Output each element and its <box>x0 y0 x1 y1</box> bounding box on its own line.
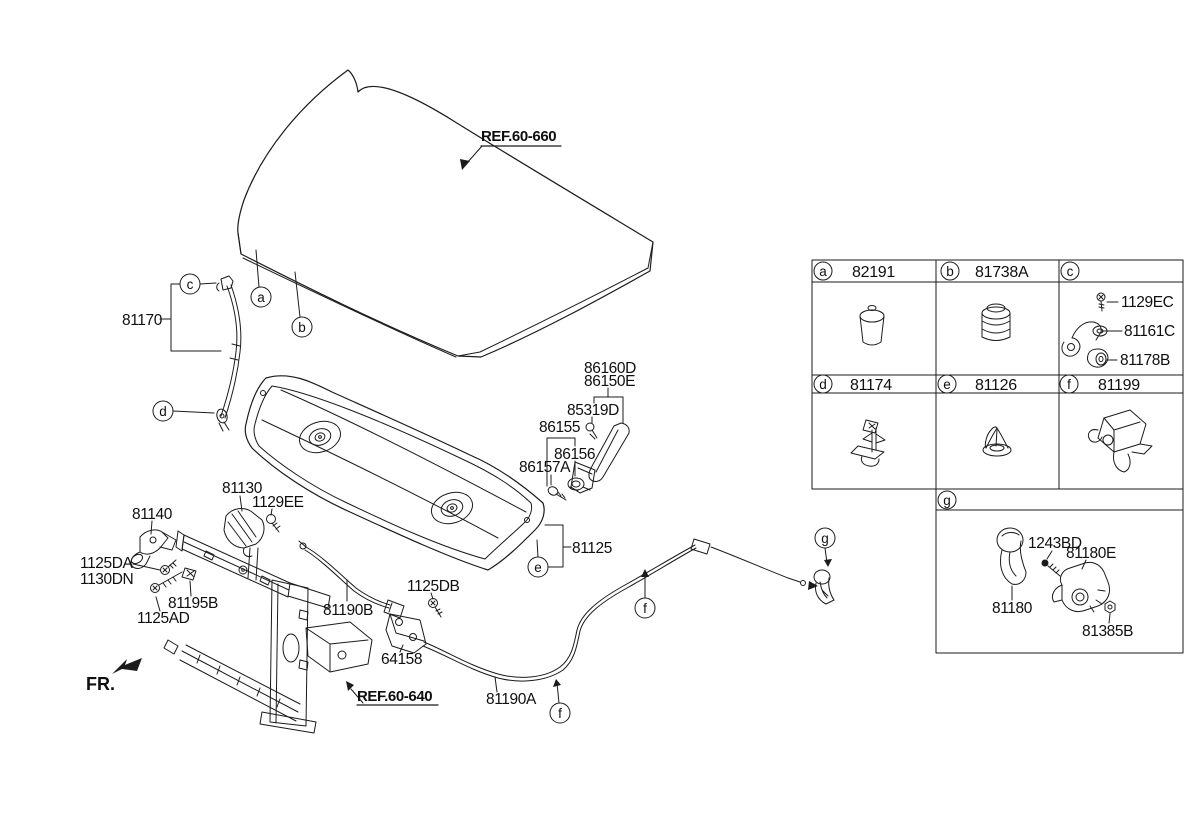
insulator-pad-label[interactable]: 81125 <box>572 540 612 557</box>
table-part-d: 81174 <box>850 377 892 394</box>
table-letter-f: f <box>1067 377 1071 392</box>
callout-e-letter: e <box>534 560 542 575</box>
table-part-g-handle[interactable]: 81180 <box>992 600 1033 617</box>
table-part-f: 81199 <box>1098 377 1140 394</box>
carrier-drawing <box>164 531 372 733</box>
latch-bolt-drawing <box>267 515 281 533</box>
hood-bumper-bracket-icons <box>1062 293 1122 367</box>
release-striker-icon <box>1052 562 1109 612</box>
ref-hood-text[interactable]: REF.60-660 <box>481 128 556 145</box>
hood-parts-diagram: REF.60-660 a b 81170 c d <box>0 0 1200 820</box>
latch-bolt-label[interactable]: 1129EE <box>252 494 304 511</box>
bracket-bolt-label[interactable]: 1125DB <box>407 578 460 595</box>
side-seal-screw-label[interactable]: 86157A <box>519 459 571 476</box>
table-letter-b: b <box>946 264 954 279</box>
cable-rear-label[interactable]: 81190A <box>486 691 537 708</box>
table-part-c-grommet[interactable]: 81178B <box>1120 352 1170 369</box>
cable-front-label[interactable]: 81190B <box>323 602 373 619</box>
cable-rear-drawing <box>423 539 818 681</box>
callout-g[interactable]: g <box>815 528 835 567</box>
handle-screw-icon <box>1042 560 1061 577</box>
ref-carrier-arrowhead <box>346 681 354 691</box>
table-cell-e-header[interactable]: e 81126 <box>938 375 1017 394</box>
table-letter-e: e <box>943 377 951 392</box>
table-part-g-nut[interactable]: 81385B <box>1082 623 1133 640</box>
weatherstrip-clip-label[interactable]: 85319D <box>567 402 619 419</box>
table-part-c-bolt[interactable]: 1129EC <box>1121 294 1174 311</box>
prop-rod-label[interactable]: 81170 <box>122 312 163 329</box>
handle-nut-icon <box>1105 601 1115 613</box>
hood-hinge-drawing <box>130 530 176 569</box>
hinge-bolt-upper-label[interactable]: 1125DA <box>80 555 134 572</box>
push-grommet-icon <box>983 427 1011 456</box>
callout-f2[interactable]: f <box>550 679 570 723</box>
weatherstrip-labels: 86160D 86150E 85319D 86155 86156 86157A <box>519 360 636 486</box>
retainer-clip-icon <box>851 420 885 466</box>
parts-table: a 82191 b 81738A c <box>812 260 1183 653</box>
callout-f2-letter: f <box>558 706 562 721</box>
callout-a[interactable]: a <box>251 250 271 307</box>
release-handle-drawing <box>814 570 834 604</box>
hinge-bolt-upper-drawing <box>161 560 177 575</box>
table-letter-g: g <box>943 493 951 508</box>
ref-carrier-text[interactable]: REF.60-640 <box>357 688 432 705</box>
table-letter-d: d <box>819 377 827 392</box>
cable-bracket-label[interactable]: 64158 <box>381 651 422 668</box>
callout-c[interactable]: c <box>180 274 216 294</box>
table-letter-c: c <box>1067 264 1074 279</box>
prop-rod-clip-drawing <box>182 568 196 580</box>
hinge-nut-label[interactable]: 1130DN <box>80 571 133 588</box>
ref-carrier-label: REF.60-640 <box>346 681 438 705</box>
table-part-g-striker[interactable]: 81180E <box>1066 545 1116 562</box>
table-part-c-bracket[interactable]: 81161C <box>1124 323 1175 340</box>
callout-c-letter: c <box>187 277 194 292</box>
table-cell-a-header[interactable]: a 82191 <box>814 262 895 281</box>
cable-clip-icon <box>1088 410 1152 472</box>
callout-d[interactable]: d <box>153 401 214 421</box>
table-part-e: 81126 <box>975 377 1017 394</box>
table-cell-d-header[interactable]: d 81174 <box>814 375 892 394</box>
insulator-pad-drawing <box>245 376 544 570</box>
fr-arrow-icon <box>112 658 142 674</box>
cable-bracket-drawing <box>386 614 426 653</box>
overslam-bumper-icon <box>860 306 884 346</box>
callout-f1[interactable]: f <box>635 569 655 618</box>
table-cell-c-header[interactable]: c <box>1061 262 1079 280</box>
hinge-bolt-lower-drawing <box>151 572 183 593</box>
table-letter-a: a <box>819 264 827 279</box>
callout-e[interactable]: e <box>528 540 548 577</box>
callout-d-letter: d <box>159 404 167 419</box>
weatherstrip-lower-label[interactable]: 86150E <box>584 373 635 390</box>
table-cell-f-header[interactable]: f 81199 <box>1060 375 1140 394</box>
prop-rod-label-group: 81170 <box>122 284 221 351</box>
release-handle-icon <box>997 528 1026 584</box>
insulator-pad-label-group: 81125 <box>545 525 612 567</box>
callout-b-letter: b <box>298 320 306 335</box>
table-cell-g-header[interactable]: g <box>938 491 956 509</box>
fr-label: FR. <box>86 674 115 694</box>
prop-rod-drawing <box>215 276 241 431</box>
table-cell-b-header[interactable]: b 81738A <box>941 262 1029 281</box>
callout-a-letter: a <box>257 290 265 305</box>
fr-indicator: FR. <box>86 658 142 694</box>
hinge-bolt-lower-label[interactable]: 1125AD <box>137 610 190 627</box>
bracket-bolt-drawing <box>429 599 443 618</box>
callout-g-letter: g <box>821 531 829 546</box>
table-part-b: 81738A <box>975 264 1029 281</box>
washer-stack-icon <box>982 304 1010 341</box>
hood-hinge-label[interactable]: 81140 <box>132 506 173 523</box>
callout-f1-letter: f <box>643 601 647 616</box>
table-part-a: 82191 <box>852 264 895 281</box>
side-seal-label[interactable]: 86155 <box>539 419 580 436</box>
